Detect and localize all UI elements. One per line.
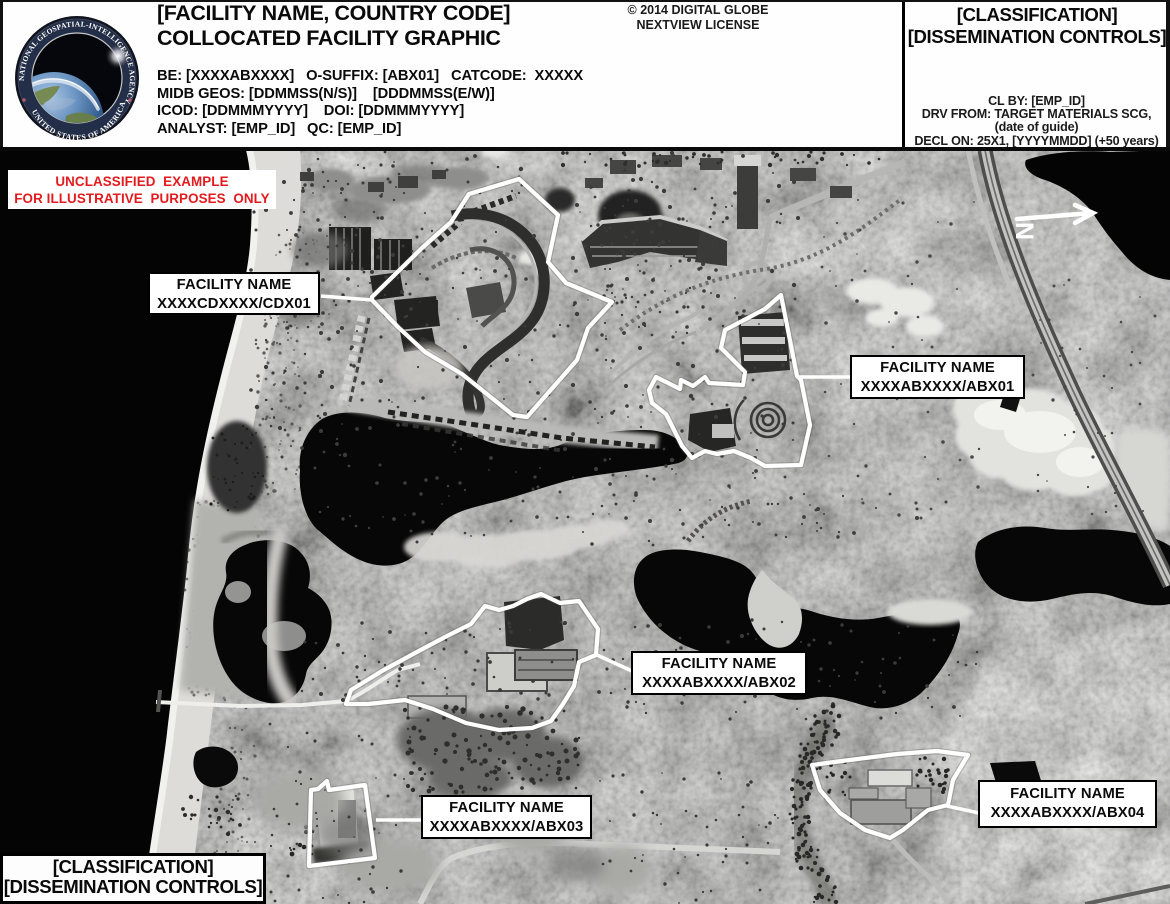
svg-text:N: N xyxy=(1010,222,1038,240)
